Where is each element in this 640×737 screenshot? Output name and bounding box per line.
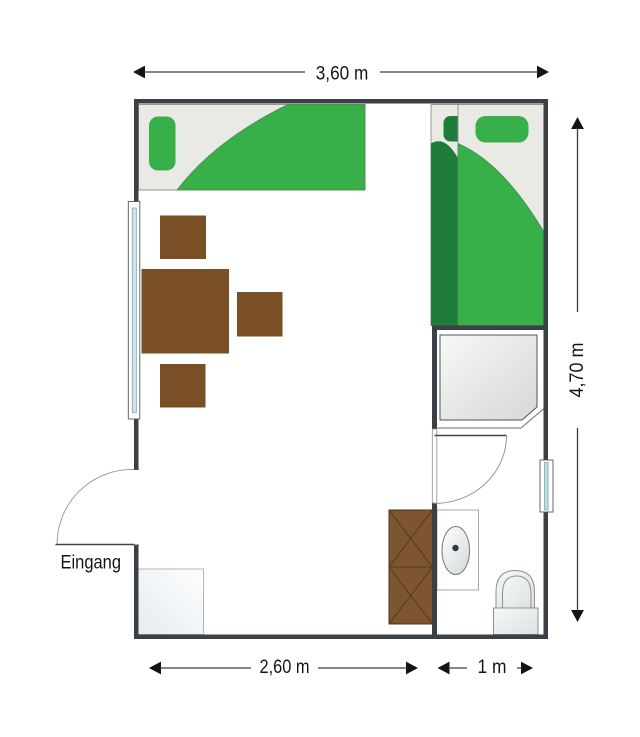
- svg-text:2,60 m: 2,60 m: [260, 656, 310, 678]
- svg-text:3,60 m: 3,60 m: [316, 62, 369, 84]
- svg-text:1 m: 1 m: [478, 656, 507, 678]
- svg-text:Eingang: Eingang: [61, 552, 122, 574]
- svg-text:4,70 m: 4,70 m: [566, 343, 588, 398]
